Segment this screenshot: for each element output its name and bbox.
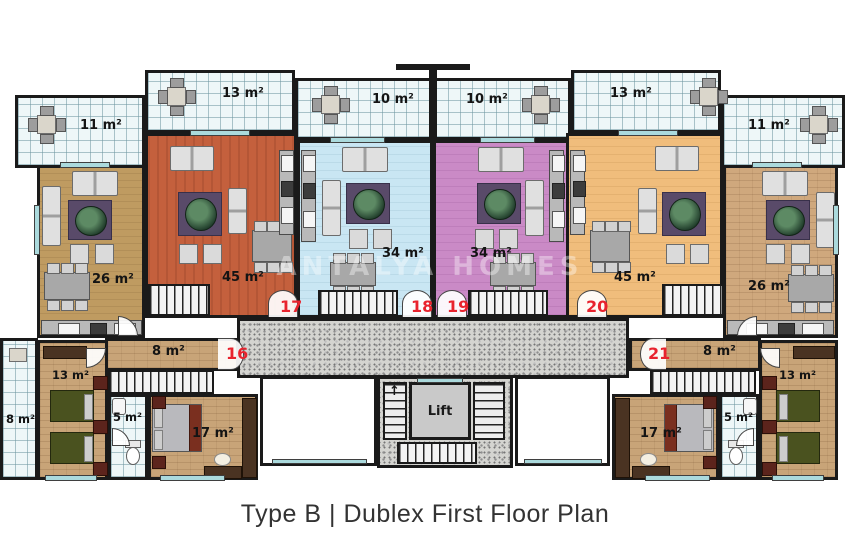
stair-flight [473, 382, 505, 440]
window [272, 459, 367, 464]
loveseat [72, 171, 118, 196]
corridor [237, 318, 629, 378]
bedroom-13-left-label: 13 m² [52, 368, 89, 382]
balcony-10-right-label: 10 m² [466, 92, 508, 107]
window [45, 475, 97, 481]
armchair [349, 229, 368, 249]
hall-stairs [650, 370, 756, 394]
kitchen-counter [301, 150, 316, 242]
armchair [766, 244, 785, 264]
window [190, 130, 250, 136]
duplex-stairs [318, 290, 398, 316]
unit-number-16: 16 [226, 344, 248, 363]
armchair [203, 244, 222, 264]
window [524, 459, 602, 464]
patio-table-icon [690, 78, 726, 114]
window [34, 205, 40, 255]
single-bed [776, 390, 820, 422]
bedroom-17-left-label: 17 m² [192, 426, 234, 441]
unit-number-17: 17 [280, 297, 302, 316]
nightstand [703, 456, 717, 469]
kitchen-counter [549, 150, 564, 242]
kitchen-counter [570, 150, 585, 235]
window [60, 162, 110, 168]
armchair [690, 244, 709, 264]
window [833, 205, 839, 255]
loveseat [762, 171, 808, 196]
balcony-13-left-label: 13 m² [222, 86, 264, 101]
patio-table-icon [9, 348, 27, 362]
balcony-10-left-label: 10 m² [372, 92, 414, 107]
lift-label: Lift [428, 404, 453, 419]
armchair [791, 244, 810, 264]
stair-flight [397, 442, 477, 464]
light-well [515, 376, 610, 466]
window [772, 475, 824, 481]
living-26-right-label: 26 m² [748, 279, 790, 294]
armchair [666, 244, 685, 264]
nightstand [762, 420, 777, 434]
lamp [214, 453, 231, 466]
watermark: ANTALYA HOMES [235, 252, 625, 282]
window [618, 130, 678, 136]
window [160, 475, 225, 481]
patio-table-icon [522, 86, 558, 122]
balcony-13-right-label: 13 m² [610, 86, 652, 101]
duplex-stairs [148, 284, 210, 316]
nightstand [93, 420, 108, 434]
page-title: Type B | Dublex First Floor Plan [0, 500, 850, 529]
nightstand [762, 462, 777, 476]
coffee-table-rug [662, 192, 706, 236]
light-well [260, 376, 377, 466]
patio-table-icon [28, 106, 64, 142]
loveseat [342, 147, 388, 172]
wardrobe [615, 398, 630, 478]
kitchen-counter [279, 150, 294, 235]
nightstand [152, 396, 166, 409]
armchair [179, 244, 198, 264]
loveseat [170, 146, 214, 171]
duplex-stairs [662, 284, 724, 316]
sofa [228, 188, 247, 234]
coffee-table-rug [178, 192, 222, 236]
balcony-8-left-label: 8 m² [6, 412, 35, 426]
sofa [525, 180, 544, 236]
hall-stairs [108, 370, 214, 394]
coffee-table-rug [68, 200, 112, 240]
armchair [70, 244, 89, 264]
toilet [729, 447, 743, 465]
single-bed [50, 390, 94, 422]
dining-table [44, 272, 90, 300]
sofa [638, 188, 657, 234]
armchair [95, 244, 114, 264]
window [752, 162, 802, 168]
wardrobe [793, 346, 835, 359]
patio-table-icon [312, 86, 348, 122]
bedroom-13-right-label: 13 m² [779, 368, 816, 382]
floor-plan: 11 m² 13 m² 10 m² 10 m² 13 m² 11 m² 26 m… [0, 0, 850, 550]
patio-table-icon [800, 106, 836, 142]
stair-direction-arrow: ↑ [389, 384, 400, 399]
nightstand [703, 396, 717, 409]
coffee-table-rug [477, 183, 521, 224]
toilet [126, 447, 140, 465]
duplex-stairs [468, 290, 548, 316]
nightstand [152, 456, 166, 469]
coffee-table-rug [766, 200, 810, 240]
wardrobe [242, 398, 257, 478]
unit-number-20: 20 [586, 297, 608, 316]
nightstand [93, 462, 108, 476]
patio-table-icon [158, 78, 194, 114]
hall-8-right-label: 8 m² [703, 344, 736, 359]
single-bed [776, 432, 820, 464]
bathroom-5-right-label: 5 m² [724, 410, 753, 424]
wardrobe [43, 346, 87, 359]
living-26-left-label: 26 m² [92, 272, 134, 287]
hall-8-left-label: 8 m² [152, 344, 185, 359]
balcony-11-right-label: 11 m² [748, 118, 790, 133]
nightstand [762, 376, 777, 390]
sofa [42, 186, 61, 246]
window [645, 475, 710, 481]
unit-number-19: 19 [447, 297, 469, 316]
unit-number-21: 21 [648, 344, 670, 363]
nightstand [93, 376, 108, 390]
unit-number-18: 18 [411, 297, 433, 316]
window [480, 137, 535, 143]
balcony-11-left-label: 11 m² [80, 118, 122, 133]
balcony-divider-cap [396, 64, 470, 70]
loveseat [655, 146, 699, 171]
sofa [322, 180, 341, 236]
bedroom-17-right-label: 17 m² [640, 426, 682, 441]
window [330, 137, 385, 143]
lamp [640, 453, 657, 466]
dining-table [788, 274, 834, 302]
window [417, 378, 463, 383]
lift: Lift [409, 382, 471, 440]
single-bed [50, 432, 94, 464]
balcony-divider-wall [429, 66, 437, 142]
coffee-table-rug [346, 183, 390, 224]
bathroom-5-left-label: 5 m² [113, 410, 142, 424]
loveseat [478, 147, 524, 172]
